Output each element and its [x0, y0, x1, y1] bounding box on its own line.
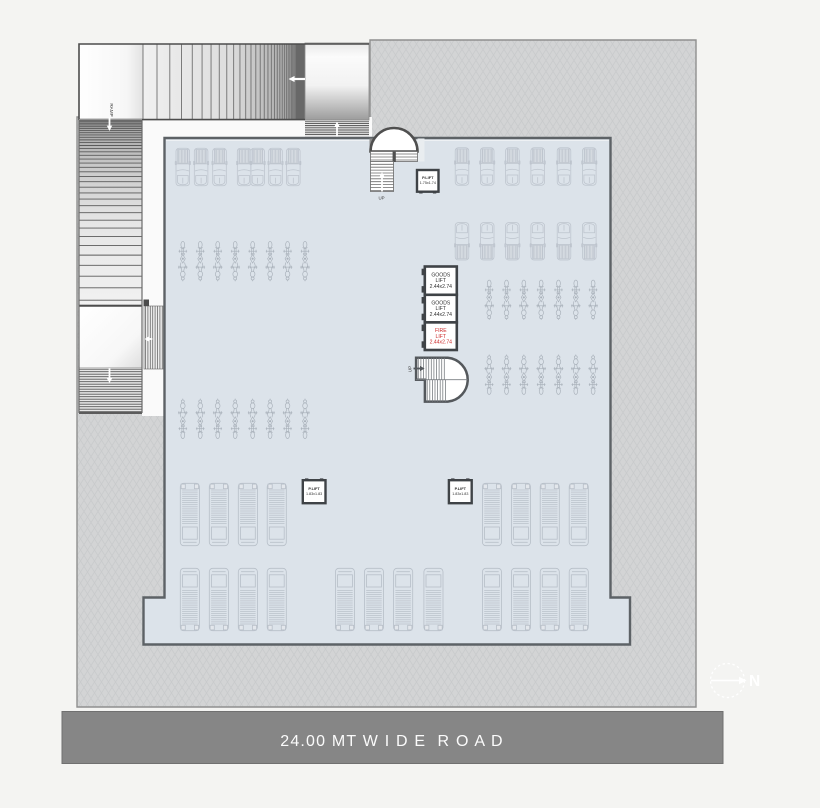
svg-text:P.LIFT: P.LIFT [422, 175, 434, 180]
svg-text:2.44x2.74: 2.44x2.74 [430, 340, 453, 346]
svg-text:1.83x1.83: 1.83x1.83 [452, 492, 468, 496]
svg-text:P.LIFT: P.LIFT [308, 486, 320, 491]
svg-text:1.75x1.74: 1.75x1.74 [420, 181, 436, 185]
svg-text:N: N [749, 673, 760, 690]
svg-text:1.83x1.83: 1.83x1.83 [306, 492, 322, 496]
svg-text:UP: UP [408, 366, 413, 372]
svg-text:RAMP: RAMP [109, 103, 114, 116]
svg-text:UP: UP [378, 196, 384, 201]
svg-text:24.00 MT W I D E R O A D: 24.00 MT W I D E R O A D [280, 733, 504, 750]
svg-text:2.44x2.74: 2.44x2.74 [430, 312, 453, 318]
svg-text:P.LIFT: P.LIFT [455, 486, 467, 491]
svg-text:2.44x2.74: 2.44x2.74 [430, 284, 453, 290]
